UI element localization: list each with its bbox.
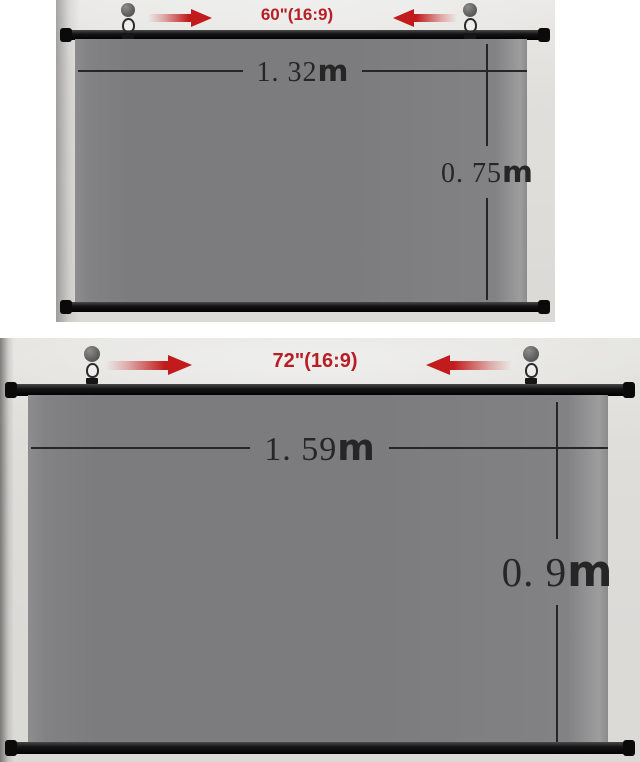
width-dimension-label: 1. 32m bbox=[257, 53, 349, 89]
size-label: 60"(16:9) bbox=[227, 5, 367, 25]
dimension-line bbox=[486, 198, 488, 300]
screen-72-panel: 72"(16:9) 1. 59m 0. 9m bbox=[0, 338, 640, 762]
arrow-right-icon bbox=[148, 9, 212, 27]
dimension-unit: m bbox=[502, 154, 533, 189]
dimension-line bbox=[31, 447, 250, 449]
hanger-tab-icon bbox=[525, 378, 537, 384]
wall-pin-left-icon bbox=[121, 3, 135, 39]
dimension-line bbox=[556, 605, 558, 742]
dimension-line bbox=[78, 70, 243, 72]
dimension-line bbox=[486, 44, 488, 146]
dimension-unit: m bbox=[337, 428, 375, 469]
dimension-value: 1. 59 bbox=[264, 431, 337, 468]
hook-icon bbox=[464, 18, 477, 33]
height-dimension: 0. 75m bbox=[432, 44, 542, 300]
dimension-line bbox=[556, 402, 558, 539]
pin-head-icon bbox=[463, 3, 477, 17]
dimension-value: 0. 75 bbox=[441, 158, 502, 189]
arrow-left-icon bbox=[426, 355, 512, 375]
dimension-unit: m bbox=[567, 547, 612, 597]
dimension-unit: m bbox=[318, 53, 349, 88]
dimension-value: 1. 32 bbox=[257, 57, 318, 88]
height-dimension-label: 0. 75m bbox=[441, 154, 533, 190]
wall-pin-right-icon bbox=[523, 346, 539, 384]
wall-pin-right-icon bbox=[463, 3, 477, 39]
width-dimension-label: 1. 59m bbox=[264, 428, 375, 469]
projector-screen-size-diagram: 60"(16:9) 1. 32m 0. 75m bbox=[0, 0, 640, 762]
screen-60-panel: 60"(16:9) 1. 32m 0. 75m bbox=[0, 0, 640, 322]
arrow-left-icon bbox=[393, 9, 457, 27]
dimension-value: 0. 9 bbox=[502, 549, 568, 595]
bottom-rod bbox=[64, 302, 546, 312]
height-dimension-label: 0. 9m bbox=[502, 547, 613, 597]
pin-head-icon bbox=[84, 346, 100, 362]
pin-head-icon bbox=[523, 346, 539, 362]
wall-pin-left-icon bbox=[84, 346, 100, 384]
size-label: 72"(16:9) bbox=[235, 350, 395, 373]
hook-icon bbox=[122, 18, 135, 33]
hanger-tab-icon bbox=[86, 378, 98, 384]
hook-icon bbox=[525, 363, 538, 378]
arrow-right-icon bbox=[106, 355, 192, 375]
height-dimension: 0. 9m bbox=[497, 402, 617, 742]
hook-icon bbox=[86, 363, 99, 378]
pin-head-icon bbox=[121, 3, 135, 17]
bottom-rod bbox=[9, 742, 631, 754]
